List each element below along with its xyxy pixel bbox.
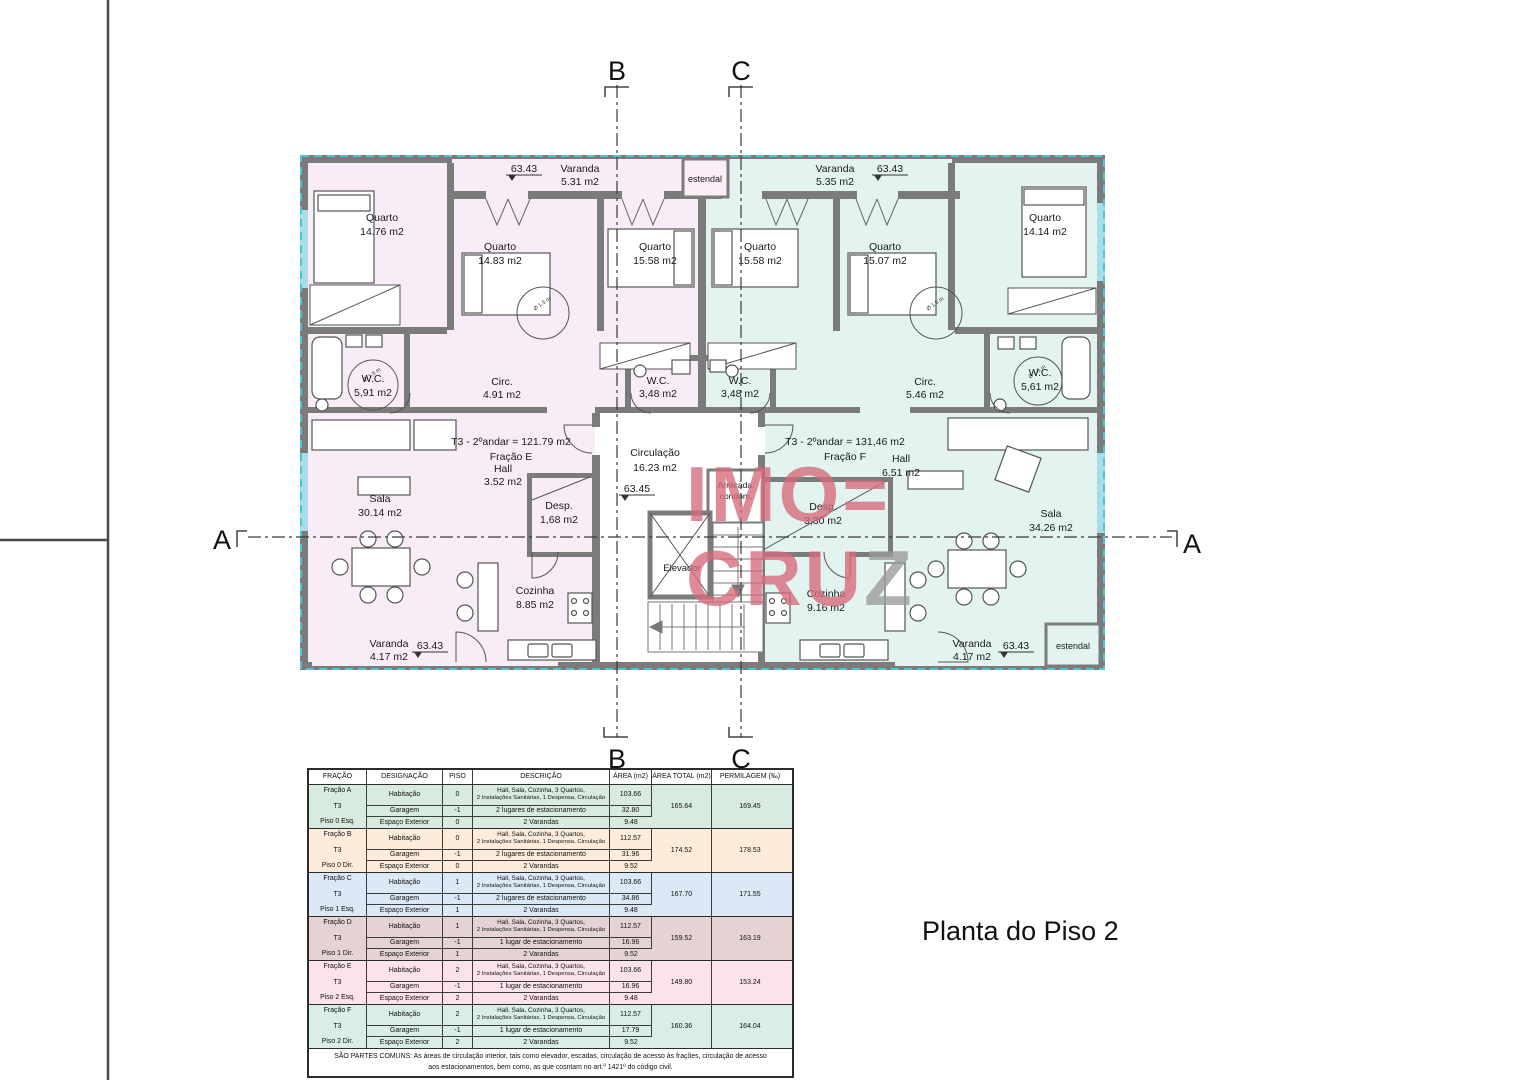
label-varanda-top-left: Varanda xyxy=(561,163,600,175)
section-label-b-top: B xyxy=(608,56,626,86)
descricao-cell: Hall, Sala, Cozinha, 3 Quartos,2 Instala… xyxy=(473,785,610,806)
label-apartment-e-title: T3 - 2ºandar = 121.79 m2 xyxy=(451,436,571,448)
svg-text:34.26 m2: 34.26 m2 xyxy=(1029,522,1073,534)
label-quarto-e2: Quarto xyxy=(484,241,516,253)
label-cozinha-e: Cozinha xyxy=(516,585,555,597)
section-label-c-top: C xyxy=(731,56,751,86)
stair-flight-lower xyxy=(648,602,763,652)
table-group-fracao-b: Fração BT3Piso 0 Dir. Habitação 0 Hall, … xyxy=(309,828,792,872)
label-quarto-e3: Quarto xyxy=(639,241,671,253)
section-label-a-left: A xyxy=(213,525,231,555)
drawing-sheet: { "sheet": { "title": "Planta do Piso 2"… xyxy=(0,0,1528,1080)
label-hall-f: Hall xyxy=(892,453,910,465)
section-label-a-right: A xyxy=(1183,529,1201,559)
svg-text:4.17 m2: 4.17 m2 xyxy=(953,651,991,663)
svg-text:63.43: 63.43 xyxy=(511,163,537,175)
table-group-fracao-d: Fração DT3Piso 1 Dir. Habitação 1 Hall, … xyxy=(309,916,792,960)
label-estendal-bottom: estendal xyxy=(1056,641,1090,651)
svg-text:3.52 m2: 3.52 m2 xyxy=(484,476,522,488)
header-descricao: DESCRIÇÃO xyxy=(473,770,610,784)
svg-text:16.23 m2: 16.23 m2 xyxy=(633,462,677,474)
label-sala-e: Sala xyxy=(369,493,390,505)
label-quarto-f3: Quarto xyxy=(1029,212,1061,224)
svg-text:5,91 m2: 5,91 m2 xyxy=(354,387,392,399)
label-varanda-bottom-left: Varanda xyxy=(370,638,409,650)
sheet-border xyxy=(0,0,108,1080)
svg-text:3,30 m2: 3,30 m2 xyxy=(804,515,842,527)
svg-text:63.45: 63.45 xyxy=(624,483,650,495)
svg-text:4.17 m2: 4.17 m2 xyxy=(370,651,408,663)
label-quarto-f2: Quarto xyxy=(869,241,901,253)
label-quarto-f1: Quarto xyxy=(744,241,776,253)
fracao-cell: Fração AT3Piso 0 Esq. xyxy=(309,785,367,828)
header-permilagem: PERMILAGEM (‰) xyxy=(712,770,788,784)
svg-text:Fração E: Fração E xyxy=(490,451,533,463)
svg-text:14.14 m2: 14.14 m2 xyxy=(1023,226,1067,238)
svg-text:15.58 m2: 15.58 m2 xyxy=(738,255,782,267)
label-circ-f: Circ. xyxy=(914,376,936,388)
svg-text:5.35 m2: 5.35 m2 xyxy=(816,176,854,188)
label-varanda-bottom-right: Varanda xyxy=(953,638,992,650)
table-group-fracao-a: Fração AT3Piso 0 Esq. Habitação 0 Hall, … xyxy=(309,784,792,828)
svg-text:15.58 m2: 15.58 m2 xyxy=(633,255,677,267)
label-circulacao: Circulação xyxy=(630,447,680,459)
page-title: Planta do Piso 2 xyxy=(922,916,1119,947)
label-circ-e: Circ. xyxy=(491,376,513,388)
designacao-cell: Habitação xyxy=(367,785,443,806)
label-quarto-e1: Quarto xyxy=(366,212,398,224)
svg-text:condom.: condom. xyxy=(720,491,753,501)
svg-text:15.07 m2: 15.07 m2 xyxy=(863,255,907,267)
svg-text:63.43: 63.43 xyxy=(417,640,443,652)
label-elevador: Elevador xyxy=(663,563,701,574)
svg-text:9.16 m2: 9.16 m2 xyxy=(807,602,845,614)
label-wc-f2: W.C. xyxy=(1029,367,1052,379)
label-sala-f: Sala xyxy=(1040,508,1061,520)
table-group-fracao-c: Fração CT3Piso 1 Esq. Habitação 1 Hall, … xyxy=(309,872,792,916)
label-desp-e: Desp. xyxy=(545,500,572,512)
label-wc-e2: W.C. xyxy=(647,375,670,387)
table-footer-note: SÃO PARTES COMUNS: As áreas de circulaçã… xyxy=(309,1048,792,1076)
svg-text:Fração F: Fração F xyxy=(824,451,866,463)
svg-text:14.76 m2: 14.76 m2 xyxy=(360,226,404,238)
header-area: ÁREA (m2) xyxy=(610,770,652,784)
piso-cell: 0 xyxy=(443,785,473,806)
svg-text:8.85 m2: 8.85 m2 xyxy=(516,599,554,611)
svg-text:5,61 m2: 5,61 m2 xyxy=(1021,381,1059,393)
svg-text:14.83 m2: 14.83 m2 xyxy=(478,255,522,267)
svg-text:3,48 m2: 3,48 m2 xyxy=(721,388,759,400)
svg-text:5.31 m2: 5.31 m2 xyxy=(561,176,599,188)
svg-text:3,48 m2: 3,48 m2 xyxy=(639,388,677,400)
svg-text:30.14 m2: 30.14 m2 xyxy=(358,507,402,519)
svg-text:63.43: 63.43 xyxy=(877,163,903,175)
header-area-total: ÁREA TOTAL (m2) xyxy=(652,770,712,784)
label-hall-e: Hall xyxy=(494,463,512,475)
area-table-header: FRAÇÃO DESIGNAÇÃO PISO DESCRIÇÃO ÁREA (m… xyxy=(309,770,792,784)
svg-text:5.46 m2: 5.46 m2 xyxy=(906,389,944,401)
area-table: FRAÇÃO DESIGNAÇÃO PISO DESCRIÇÃO ÁREA (m… xyxy=(307,768,794,1078)
label-apartment-f-title: T3 - 2ºandar = 131,46 m2 xyxy=(785,436,905,448)
header-designacao: DESIGNAÇÃO xyxy=(367,770,443,784)
label-wc-e1: W.C. xyxy=(362,373,385,385)
stair-flight-upper xyxy=(713,523,763,602)
label-arrecada: Arrecada. xyxy=(718,480,755,490)
label-estendal-top: estendal xyxy=(688,174,722,184)
label-wc-f1: W.C. xyxy=(729,375,752,387)
header-piso: PISO xyxy=(443,770,473,784)
header-fracao: FRAÇÃO xyxy=(309,770,367,784)
area-cell: 103.66 xyxy=(610,785,652,806)
svg-text:6.51 m2: 6.51 m2 xyxy=(882,467,920,479)
svg-text:4.91 m2: 4.91 m2 xyxy=(483,389,521,401)
svg-text:1,68 m2: 1,68 m2 xyxy=(540,514,578,526)
label-varanda-top-right: Varanda xyxy=(816,163,855,175)
area-total-cell: 165.64 xyxy=(652,785,712,828)
permilagem-cell: 169.45 xyxy=(712,785,788,828)
table-group-fracao-e: Fração ET3Piso 2 Esq. Habitação 2 Hall, … xyxy=(309,960,792,1004)
label-desp-f: Desp. xyxy=(809,501,836,513)
label-cozinha-f: Cozinha xyxy=(807,588,846,600)
table-group-fracao-f: Fração FT3Piso 2 Dir. Habitação 2 Hall, … xyxy=(309,1004,792,1048)
svg-text:63.43: 63.43 xyxy=(1003,640,1029,652)
